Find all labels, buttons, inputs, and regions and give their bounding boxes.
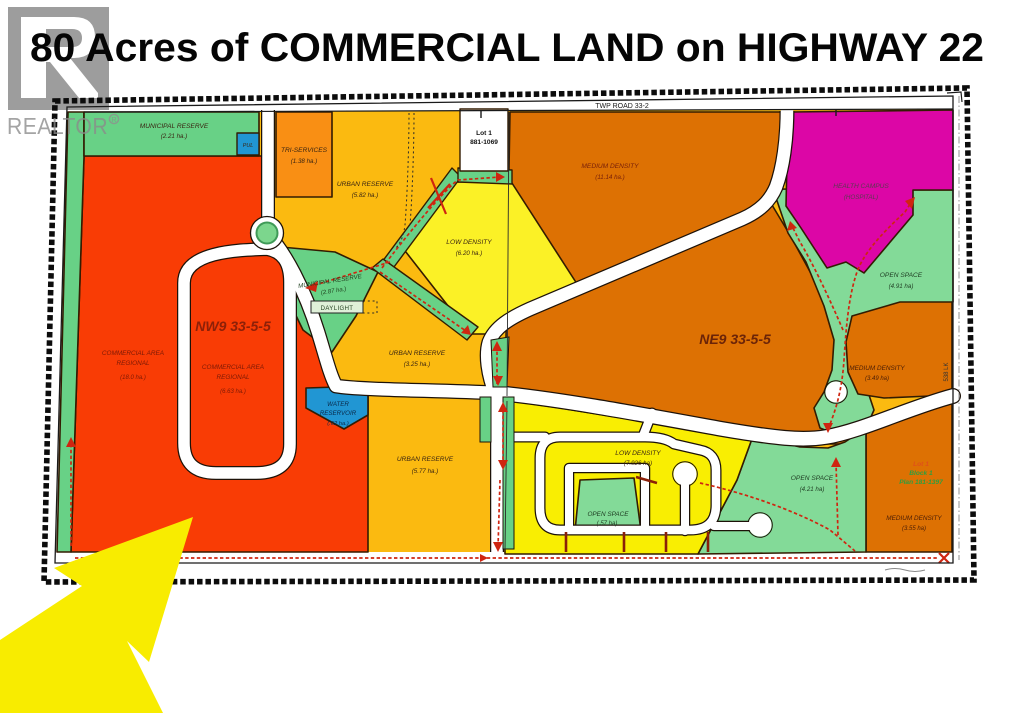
svg-text:LOW DENSITY: LOW DENSITY — [615, 450, 661, 457]
svg-text:Lot 1: Lot 1 — [476, 130, 492, 137]
svg-text:(6.20 ha.): (6.20 ha.) — [456, 250, 482, 257]
svg-text:TRI-SERVICES: TRI-SERVICES — [281, 147, 328, 154]
svg-text:(.57 ha): (.57 ha) — [597, 521, 618, 527]
svg-text:REALTOR: REALTOR — [7, 113, 108, 139]
svg-text:MEDIUM DENSITY: MEDIUM DENSITY — [849, 365, 905, 372]
svg-text:(6.63 ha.): (6.63 ha.) — [220, 389, 246, 395]
svg-text:REGIONAL: REGIONAL — [216, 374, 249, 381]
svg-text:80 Acres of COMMERCIAL LAND on: 80 Acres of COMMERCIAL LAND on HIGHWAY 2… — [30, 26, 984, 70]
svg-text:REGIONAL: REGIONAL — [116, 360, 149, 367]
svg-text:881-1069: 881-1069 — [470, 139, 498, 146]
svg-text:(3.55 ha): (3.55 ha) — [902, 526, 926, 532]
svg-text:(4.91 ha): (4.91 ha) — [889, 283, 914, 290]
svg-text:WATER: WATER — [327, 401, 349, 408]
svg-text:(HOSPITAL): (HOSPITAL) — [844, 194, 878, 201]
svg-text:HEALTH CAMPUS: HEALTH CAMPUS — [833, 183, 889, 190]
svg-text:COMMERCIAL AREA: COMMERCIAL AREA — [202, 364, 264, 371]
svg-text:(1.38 ha.): (1.38 ha.) — [291, 158, 317, 165]
svg-text:URBAN RESERVE: URBAN RESERVE — [397, 456, 454, 463]
svg-text:(.62 ha.): (.62 ha.) — [327, 421, 349, 427]
svg-text:NE9 33-5-5: NE9 33-5-5 — [699, 331, 771, 347]
svg-text:TWP ROAD 33-2: TWP ROAD 33-2 — [595, 103, 649, 110]
svg-text:538 LK: 538 LK — [944, 362, 950, 381]
svg-text:LOW DENSITY: LOW DENSITY — [446, 239, 492, 246]
svg-text:OPEN SPACE: OPEN SPACE — [587, 511, 629, 518]
svg-text:URBAN RESERVE: URBAN RESERVE — [337, 181, 394, 188]
svg-text:URBAN RESERVE: URBAN RESERVE — [389, 350, 446, 357]
svg-text:(5.77 ha.): (5.77 ha.) — [412, 468, 438, 475]
svg-text:Block 1: Block 1 — [909, 470, 933, 477]
svg-text:NW9 33-5-5: NW9 33-5-5 — [195, 318, 271, 334]
svg-text:Lot 1: Lot 1 — [913, 461, 929, 468]
svg-text:(18.0 ha.): (18.0 ha.) — [120, 375, 146, 381]
svg-text:(3.25 ha.): (3.25 ha.) — [404, 361, 430, 368]
svg-text:R: R — [111, 117, 116, 124]
svg-text:(7.926 ha): (7.926 ha) — [624, 460, 652, 467]
svg-text:PUL: PUL — [243, 143, 254, 149]
svg-text:MUNICIPAL RESERVE: MUNICIPAL RESERVE — [140, 123, 209, 130]
svg-text:DAYLIGHT: DAYLIGHT — [321, 306, 354, 312]
svg-text:COMMERCIAL AREA: COMMERCIAL AREA — [102, 350, 164, 357]
svg-text:(4.21 ha): (4.21 ha) — [800, 486, 825, 493]
svg-text:(11.14 ha.): (11.14 ha.) — [595, 174, 624, 181]
svg-text:Plan 181-1397: Plan 181-1397 — [899, 479, 943, 486]
svg-text:(3.49 ha): (3.49 ha) — [865, 376, 889, 382]
svg-text:(2.21 ha.): (2.21 ha.) — [161, 133, 187, 140]
svg-text:MEDIUM DENSITY: MEDIUM DENSITY — [581, 163, 639, 170]
svg-text:OPEN SPACE: OPEN SPACE — [791, 475, 834, 482]
svg-text:RESERVOIR: RESERVOIR — [320, 410, 357, 417]
svg-text:MEDIUM DENSITY: MEDIUM DENSITY — [886, 515, 942, 522]
svg-text:(5.82 ha.): (5.82 ha.) — [352, 192, 378, 199]
svg-text:OPEN SPACE: OPEN SPACE — [880, 272, 923, 279]
